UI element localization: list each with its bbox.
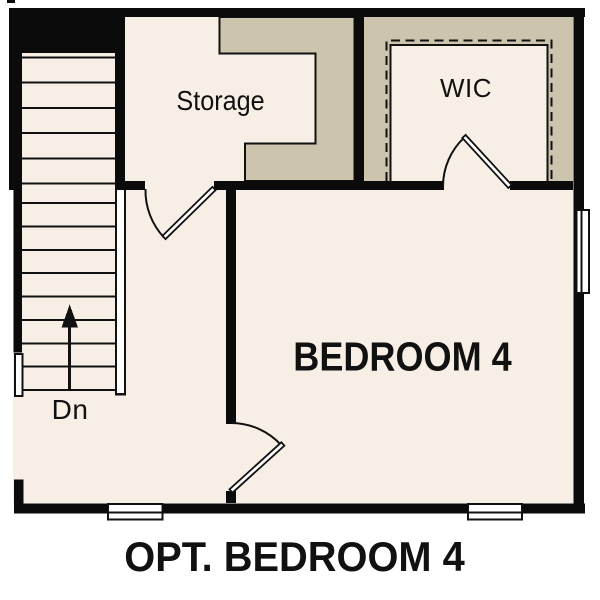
svg-text:OPT. BEDROOM 4: OPT. BEDROOM 4	[124, 533, 465, 580]
svg-text:Dn: Dn	[52, 394, 89, 425]
svg-text:Storage: Storage	[176, 85, 264, 117]
svg-text:BEDROOM 4: BEDROOM 4	[293, 334, 512, 380]
svg-text:WIC: WIC	[440, 73, 492, 103]
